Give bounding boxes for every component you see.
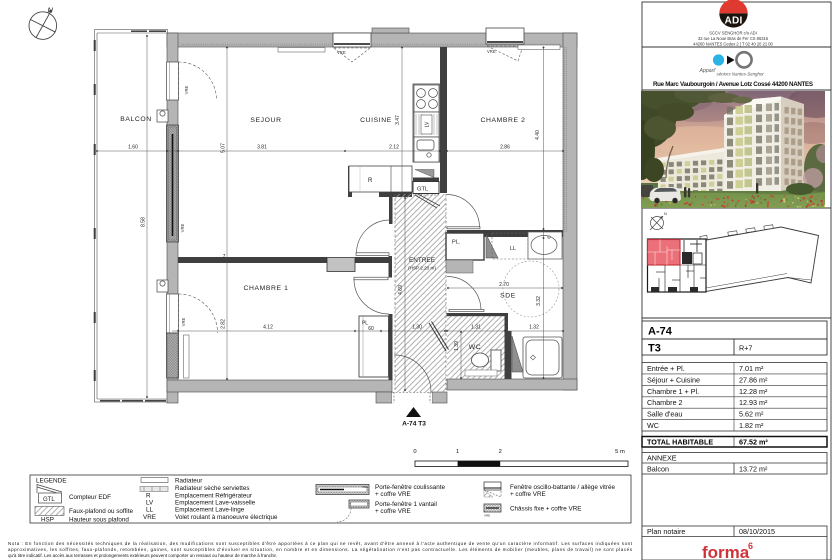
svg-text:VRE: VRE <box>181 317 186 326</box>
svg-text:60: 60 <box>368 326 374 332</box>
svg-text:VRE: VRE <box>337 50 346 55</box>
svg-text:LEGENDE: LEGENDE <box>36 478 67 485</box>
svg-text:Porte-fenêtre coulissante: Porte-fenêtre coulissante <box>375 484 446 491</box>
svg-text:CHAMBRE 1: CHAMBRE 1 <box>243 285 288 292</box>
svg-text:qu'à titre indicatif. Les accè: qu'à titre indicatif. Les accès aux terr… <box>8 553 277 558</box>
svg-text:WC: WC <box>469 344 482 351</box>
svg-text:5.62 m²: 5.62 m² <box>739 410 764 419</box>
svg-text:GTL: GTL <box>43 497 55 503</box>
svg-text:TOTAL HABITABLE: TOTAL HABITABLE <box>647 438 713 447</box>
svg-text:1.39: 1.39 <box>454 341 460 351</box>
svg-text:Salle d'eau: Salle d'eau <box>647 410 682 419</box>
svg-text:+ coffre VRE: + coffre VRE <box>375 491 411 498</box>
svg-text:Nota : En fonction des nécessi: Nota : En fonction des nécessités techni… <box>8 541 633 546</box>
svg-text:Rue Marc Vaubourgoin / Avenue: Rue Marc Vaubourgoin / Avenue Lotz Cossé… <box>653 81 813 88</box>
svg-text:Entrée + Pl.: Entrée + Pl. <box>647 364 685 373</box>
svg-text:32 rue La Noue Bras de Fer CS: 32 rue La Noue Bras de Fer CS 86316 <box>698 36 769 41</box>
svg-text:1.31: 1.31 <box>471 325 481 331</box>
svg-text:1.82 m²: 1.82 m² <box>739 421 764 430</box>
svg-text:CUISINE: CUISINE <box>360 117 392 124</box>
svg-text:Porte-fenêtre 1 vantail: Porte-fenêtre 1 vantail <box>375 501 437 508</box>
svg-text:Emplacement Lave-linge: Emplacement Lave-linge <box>175 507 245 514</box>
svg-text:Compteur EDF: Compteur EDF <box>69 494 111 501</box>
svg-text:VRE: VRE <box>184 85 189 94</box>
svg-text:7.01 m²: 7.01 m² <box>739 364 764 373</box>
svg-text:1.32: 1.32 <box>529 325 539 331</box>
svg-text:3.32: 3.32 <box>536 296 542 306</box>
svg-text:8.58: 8.58 <box>141 217 147 227</box>
svg-text:Faux-plafond ou soffite: Faux-plafond ou soffite <box>69 508 133 515</box>
svg-text:approximatives, les soffites,: approximatives, les soffites, faux-plafo… <box>8 547 633 552</box>
svg-text:VRE: VRE <box>362 485 368 489</box>
svg-text:ADI: ADI <box>724 15 742 26</box>
svg-text:2: 2 <box>499 449 502 455</box>
svg-text:T3: T3 <box>648 343 661 355</box>
svg-text:A-74 T3: A-74 T3 <box>402 421 426 428</box>
svg-text:Volet roulant à manoeuvre élec: Volet roulant à manoeuvre électrique <box>175 514 278 521</box>
svg-text:WC: WC <box>647 421 659 430</box>
svg-text:séniors Nantes-Senghor: séniors Nantes-Senghor <box>717 72 765 77</box>
svg-text:Chambre 1 + Pl.: Chambre 1 + Pl. <box>647 387 699 396</box>
svg-text:Chambre 2: Chambre 2 <box>647 398 683 407</box>
svg-text:2.12: 2.12 <box>389 145 399 151</box>
svg-text:Hauteur sous plafond: Hauteur sous plafond <box>69 517 129 524</box>
svg-text:6: 6 <box>748 541 753 551</box>
svg-text:0: 0 <box>413 449 416 455</box>
svg-text:R: R <box>146 492 151 499</box>
svg-text:SDE: SDE <box>500 293 516 300</box>
svg-text:44200 NANTES Cedex 2 | T 02 40: 44200 NANTES Cedex 2 | T 02 40 20 21 00 <box>693 41 773 46</box>
svg-text:A-74: A-74 <box>648 326 673 338</box>
svg-text:Châssis fixe + coffre VRE: Châssis fixe + coffre VRE <box>510 506 581 513</box>
svg-text:2.70: 2.70 <box>499 282 509 288</box>
svg-text:5 m: 5 m <box>615 449 625 455</box>
svg-text:08/10/2015: 08/10/2015 <box>739 527 775 536</box>
svg-text:LV: LV <box>146 500 154 507</box>
svg-text:PL.: PL. <box>452 240 461 246</box>
svg-text:LL: LL <box>146 507 154 514</box>
svg-text:LL: LL <box>510 246 516 252</box>
svg-text:SEJOUR: SEJOUR <box>250 117 281 124</box>
svg-text:3.81: 3.81 <box>257 145 267 151</box>
svg-text:SCCV SENGHOR c/o ADI: SCCV SENGHOR c/o ADI <box>709 30 757 35</box>
svg-text:Balcon: Balcon <box>647 465 669 474</box>
svg-text:Plan notaire: Plan notaire <box>647 527 685 536</box>
svg-text:forma: forma <box>702 543 750 560</box>
svg-text:N: N <box>48 6 54 15</box>
svg-text:2.82: 2.82 <box>221 319 227 329</box>
svg-text:+ coffre VRE: + coffre VRE <box>510 491 546 498</box>
svg-text:2.86: 2.86 <box>500 145 510 151</box>
svg-text:BALCON: BALCON <box>120 116 152 123</box>
svg-text:12.28 m²: 12.28 m² <box>739 387 768 396</box>
svg-text:LV: LV <box>425 121 431 127</box>
svg-text:1.60: 1.60 <box>128 145 138 151</box>
svg-text:R: R <box>368 178 373 184</box>
svg-text:R+7: R+7 <box>739 344 752 353</box>
svg-text:1.30: 1.30 <box>412 325 422 331</box>
svg-text:(HSP 2.20 m): (HSP 2.20 m) <box>408 266 436 271</box>
svg-text:Radiateur sèche serviettes: Radiateur sèche serviettes <box>175 485 250 492</box>
svg-text:CHAMBRE 2: CHAMBRE 2 <box>480 117 525 124</box>
svg-text:VRE: VRE <box>487 49 496 54</box>
svg-text:4.40: 4.40 <box>535 130 541 140</box>
svg-text:5.07: 5.07 <box>221 143 227 153</box>
svg-text:12.93 m²: 12.93 m² <box>739 398 768 407</box>
svg-text:ANNEXE: ANNEXE <box>647 454 677 463</box>
svg-text:4.12: 4.12 <box>263 325 273 331</box>
svg-text:27.86 m²: 27.86 m² <box>739 375 768 384</box>
svg-text:Radiateur: Radiateur <box>175 478 202 485</box>
svg-text:ENTREE: ENTREE <box>409 257 435 264</box>
svg-text:Emplacement Lave-vaisselle: Emplacement Lave-vaisselle <box>175 500 256 507</box>
svg-text:67.52 m²: 67.52 m² <box>739 438 768 447</box>
svg-text:HSP: HSP <box>41 517 54 524</box>
svg-text:Fenêtre oscillo-battante / all: Fenêtre oscillo-battante / allège vitrée <box>510 484 616 491</box>
svg-text:3.47: 3.47 <box>395 115 401 125</box>
svg-text:Séjour + Cuisine: Séjour + Cuisine <box>647 375 700 384</box>
svg-text:N: N <box>664 211 667 216</box>
svg-text:Appart': Appart' <box>699 68 717 74</box>
svg-text:1: 1 <box>456 449 459 455</box>
svg-text:+ coffre VRE: + coffre VRE <box>375 508 411 515</box>
svg-text:7: 7 <box>223 254 226 260</box>
svg-text:VRE: VRE <box>180 223 185 232</box>
svg-text:Emplacement Réfrigérateur: Emplacement Réfrigérateur <box>175 492 252 499</box>
svg-text:GTL: GTL <box>417 187 429 193</box>
svg-text:13.72 m²: 13.72 m² <box>739 465 768 474</box>
svg-text:VRE: VRE <box>143 514 156 521</box>
svg-text:VRE: VRE <box>484 514 490 518</box>
svg-text:4.69: 4.69 <box>398 285 404 295</box>
